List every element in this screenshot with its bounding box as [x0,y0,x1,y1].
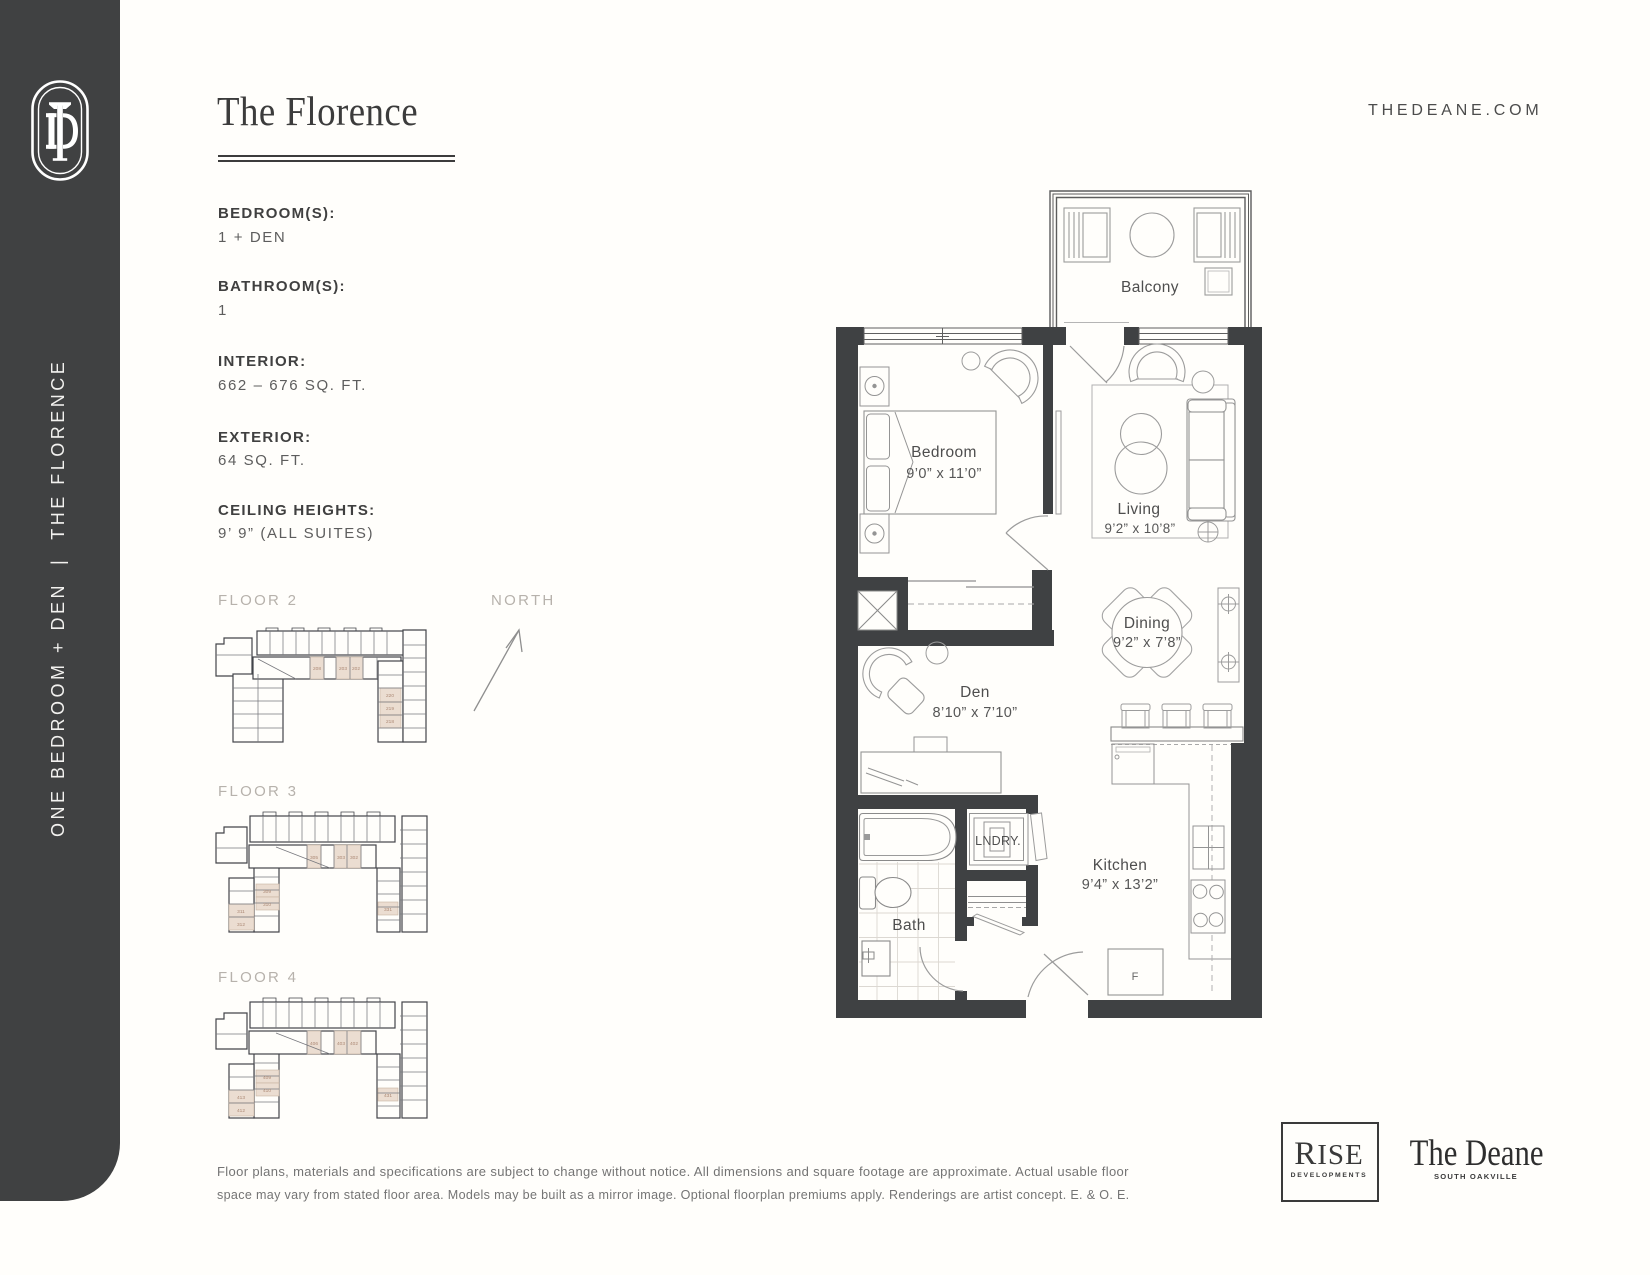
svg-text:9’2” x 10’8”: 9’2” x 10’8” [1104,521,1175,536]
svg-text:F: F [1132,971,1139,983]
svg-text:9’0” x 11’0”: 9’0” x 11’0” [906,466,981,482]
svg-text:412: 412 [237,1108,245,1114]
svg-text:Living: Living [1118,501,1161,518]
svg-text:309: 309 [263,889,271,895]
svg-text:312: 312 [237,922,245,928]
svg-text:Den: Den [960,684,990,701]
svg-text:403: 403 [337,1041,345,1047]
svg-text:406: 406 [310,1041,318,1047]
svg-text:220: 220 [386,693,394,699]
svg-text:305: 305 [310,855,318,861]
svg-text:9’4” x 13’2”: 9’4” x 13’2” [1082,877,1159,893]
svg-text:409: 409 [263,1075,271,1081]
svg-text:311: 311 [237,909,245,915]
svg-text:410: 410 [263,1088,271,1094]
svg-text:431: 431 [384,1093,392,1099]
svg-text:208: 208 [313,666,321,672]
svg-text:Bedroom: Bedroom [911,444,977,461]
svg-text:413: 413 [237,1095,245,1101]
svg-text:203: 203 [339,666,347,672]
svg-text:Bath: Bath [892,917,926,934]
svg-text:310: 310 [263,902,271,908]
svg-text:Kitchen: Kitchen [1093,857,1148,874]
svg-text:Dining: Dining [1124,615,1170,632]
svg-text:LNDRY.: LNDRY. [975,834,1021,848]
svg-text:202: 202 [352,666,360,672]
svg-text:302: 302 [350,855,358,861]
svg-text:219: 219 [386,706,394,712]
svg-text:9’2” x 7’8”: 9’2” x 7’8” [1113,635,1181,651]
svg-text:Balcony: Balcony [1121,279,1179,296]
svg-text:402: 402 [350,1041,358,1047]
svg-text:218: 218 [386,719,394,725]
svg-text:8’10” x 7’10”: 8’10” x 7’10” [933,705,1018,721]
svg-text:331: 331 [384,907,392,913]
svg-text:303: 303 [337,855,345,861]
